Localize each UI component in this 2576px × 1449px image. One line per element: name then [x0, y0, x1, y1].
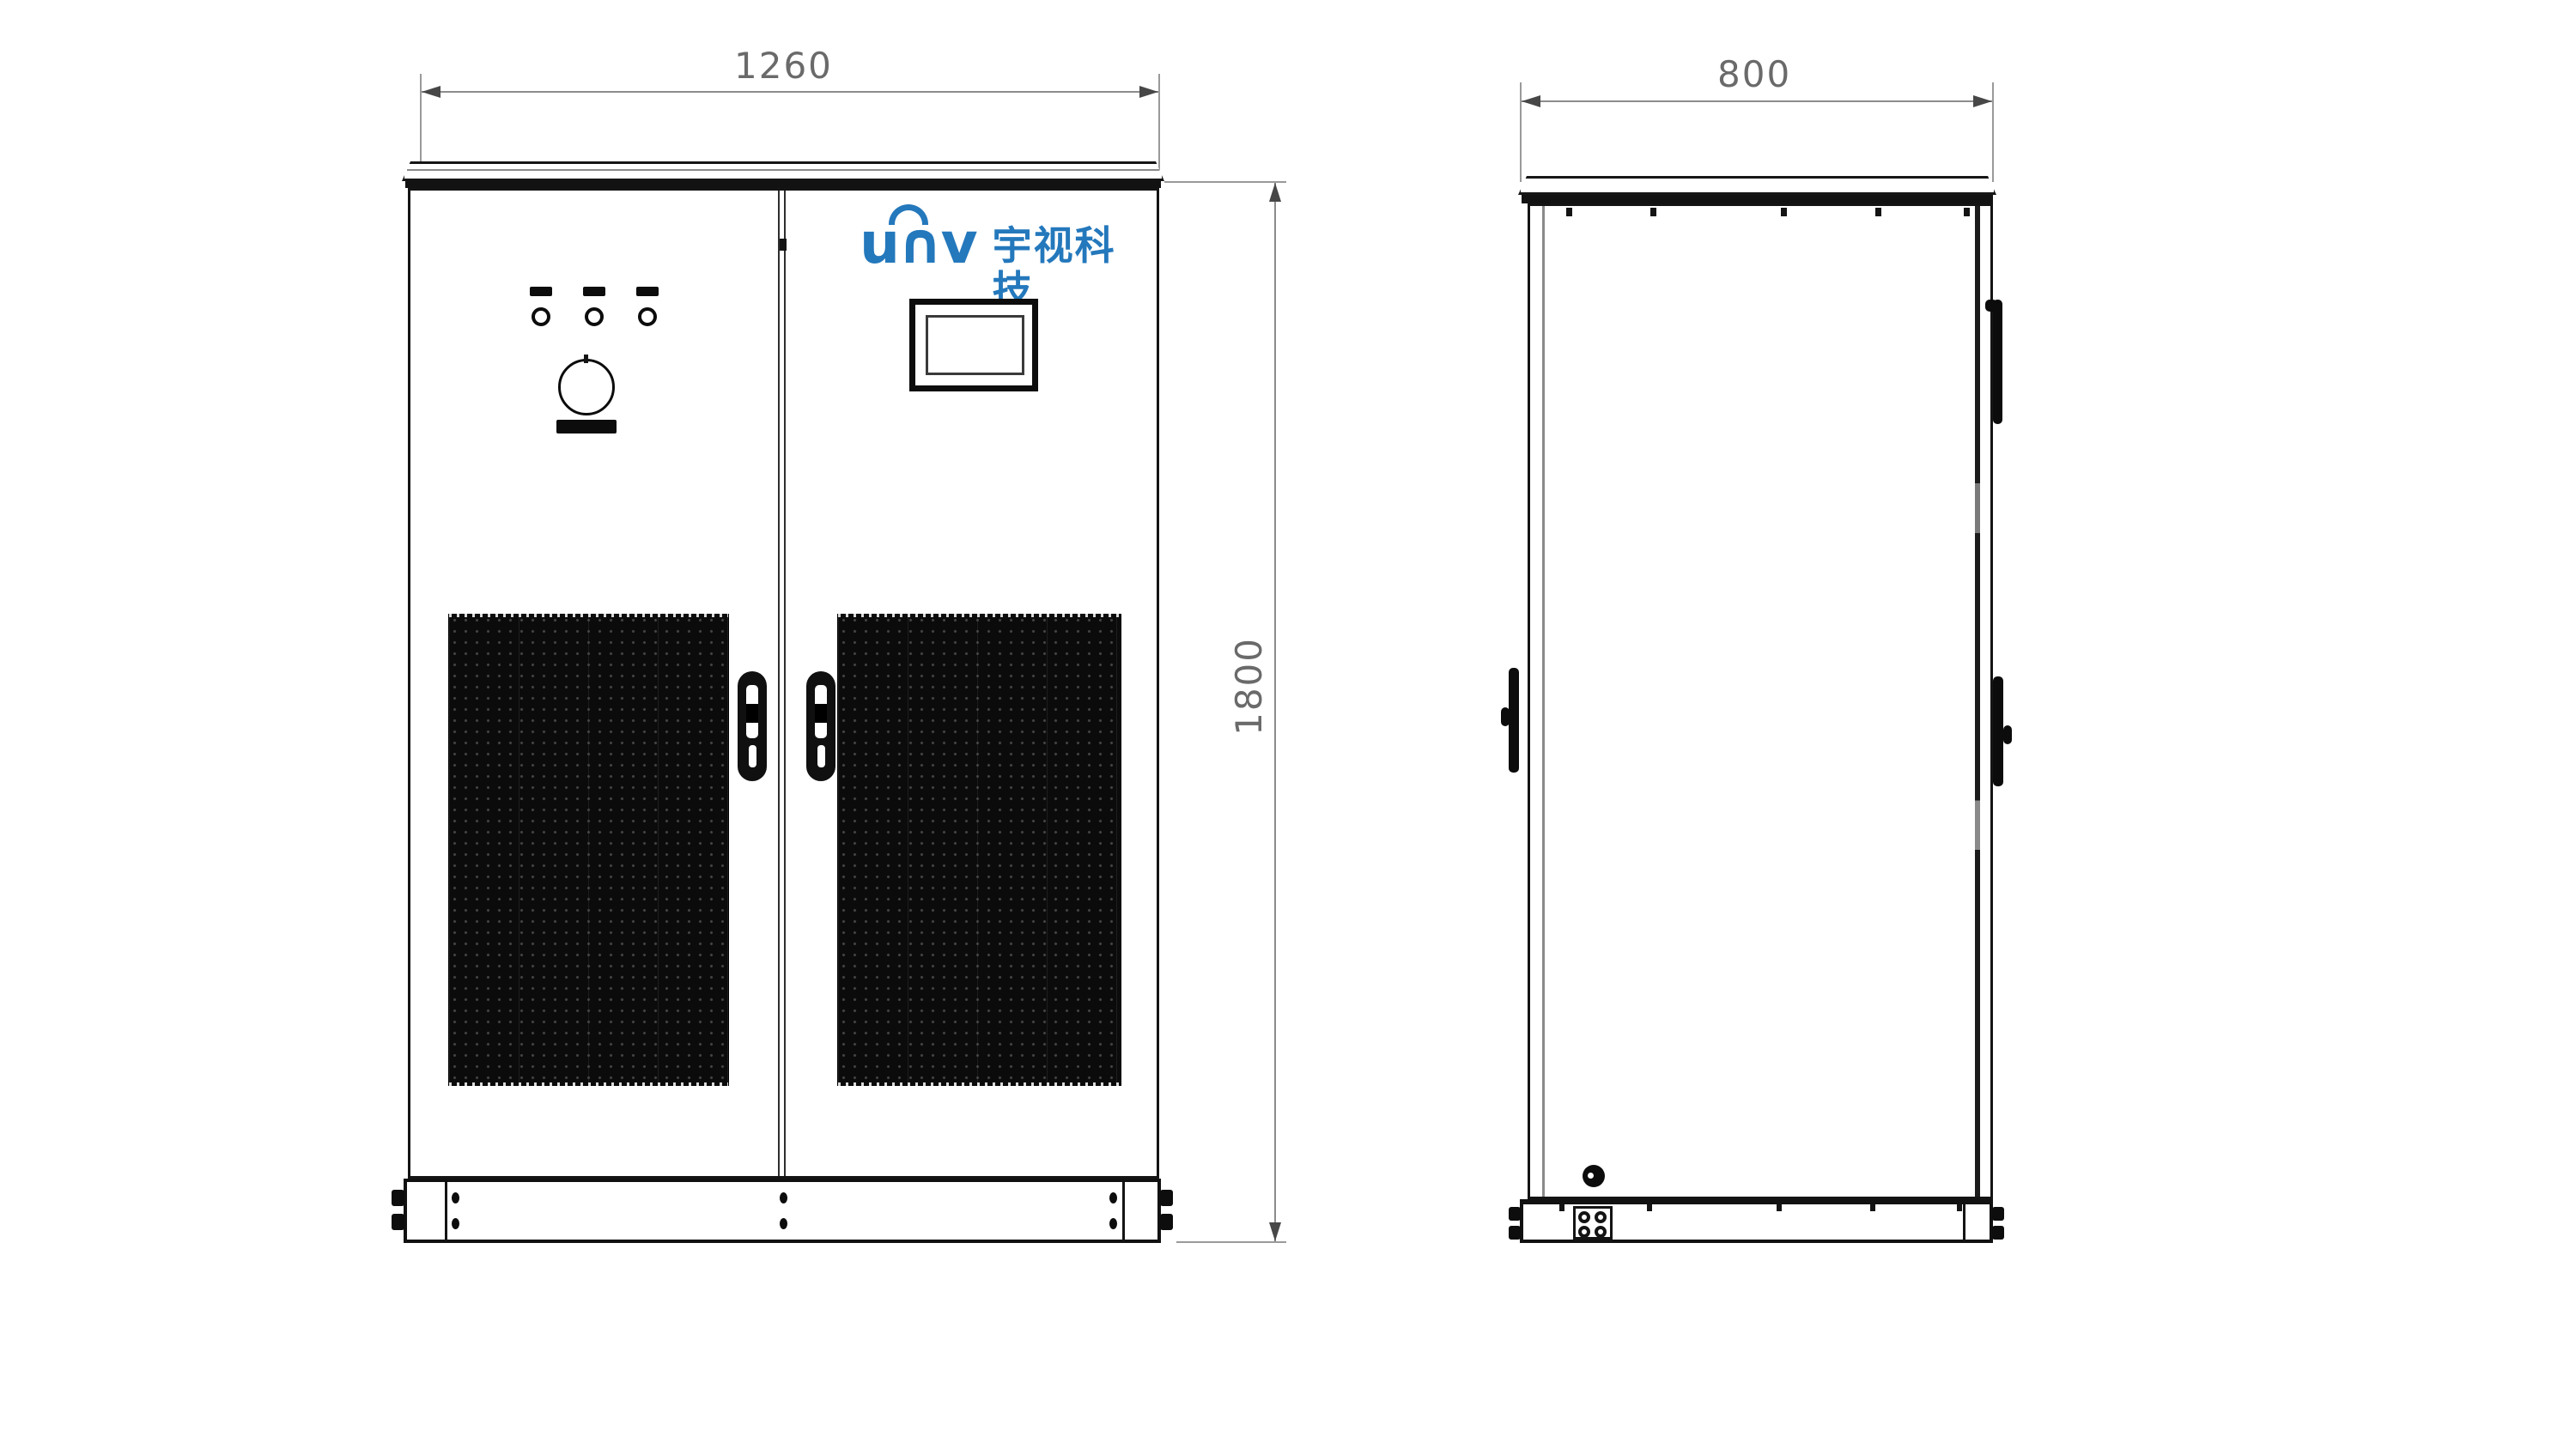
dimension-arrow-icon: [1139, 86, 1158, 98]
base-bolt-hole: [1109, 1192, 1117, 1203]
base-bolt-hole: [780, 1218, 787, 1229]
base-fastener-tick: [1647, 1204, 1652, 1211]
emergency-stop-notch: [584, 355, 588, 363]
base-fastener-tick: [1957, 1204, 1962, 1211]
front-cabinet-body: u∩v 宇视科技: [408, 188, 1159, 1179]
emergency-stop-button: [558, 359, 615, 415]
door-handle-right: [806, 671, 835, 781]
handle-latch: [815, 704, 827, 723]
door-seam-line: [778, 191, 780, 1176]
hmi-display-screen: [926, 315, 1024, 375]
front-base-plinth: [404, 1179, 1161, 1243]
emergency-stop-label-text: [556, 420, 617, 433]
front-width-dimension-label: 1260: [734, 45, 833, 87]
roof-fastener-tick: [1781, 208, 1787, 216]
side-depth-dimension-line: [1522, 100, 1992, 102]
base-side-bolt: [1160, 1214, 1173, 1230]
logo-arc-icon: [889, 204, 928, 225]
base-bolt-hole: [780, 1192, 787, 1203]
indicator-label-text: [636, 287, 659, 296]
roof-fastener-tick: [1875, 208, 1881, 216]
base-fastener-tick: [1777, 1204, 1782, 1211]
base-plate-bolt: [1578, 1226, 1590, 1238]
side-panel-rear-edge-line: [1975, 206, 1980, 1197]
dimension-arrow-icon: [1269, 1222, 1281, 1241]
door-seam-latch-mark: [780, 239, 787, 251]
base-side-bolt: [1509, 1226, 1521, 1240]
indicator-label-text: [530, 287, 552, 296]
dimension-arrow-icon: [1973, 95, 1992, 107]
front-view: 1260: [0, 0, 1331, 1449]
base-side-bolt: [1160, 1190, 1173, 1206]
side-view: 800: [1331, 0, 2576, 1449]
front-width-dimension-line: [422, 91, 1158, 93]
roof-fastener-tick: [1964, 208, 1970, 216]
base-plate-bolt: [1595, 1211, 1607, 1223]
base-bolt-hole: [452, 1218, 459, 1229]
side-top-band: [1522, 195, 1993, 203]
roof-fastener-tick: [1650, 208, 1656, 216]
handle-slot: [749, 745, 756, 767]
dimension-arrow-icon: [1522, 95, 1540, 107]
grounding-stud-center: [1588, 1173, 1594, 1179]
handle-latch: [746, 704, 758, 723]
side-base-plinth: [1520, 1199, 1993, 1243]
base-side-bolt: [392, 1190, 404, 1206]
base-plate-bolt: [1595, 1226, 1607, 1238]
indicator-light: [532, 307, 550, 326]
indicator-light: [585, 307, 604, 326]
base-side-bolt: [1992, 1226, 2004, 1240]
grounding-stud: [1583, 1165, 1605, 1187]
base-bolt-plate: [1573, 1206, 1613, 1240]
base-divider-line: [1122, 1182, 1125, 1240]
vent-grille-right: [837, 614, 1121, 1086]
base-divider-line: [445, 1182, 447, 1240]
side-panel-front-edge-line: [1542, 206, 1545, 1197]
front-height-dimension-label: 1800: [1228, 637, 1270, 736]
base-bolt-hole: [452, 1192, 459, 1203]
door-seam-line: [784, 191, 786, 1176]
base-fastener-tick: [1870, 1204, 1875, 1211]
rear-lock-rod: [1993, 300, 2002, 424]
dimension-arrow-icon: [422, 86, 440, 98]
indicator-light: [638, 307, 657, 326]
vent-grille-left: [448, 614, 729, 1086]
door-hinge-right: [1993, 676, 2003, 786]
front-top-band: [405, 180, 1161, 188]
dim-witness-line: [1164, 181, 1286, 183]
base-bolt-hole: [1109, 1218, 1117, 1229]
base-side-bolt: [392, 1214, 404, 1230]
base-side-bolt: [1992, 1207, 2004, 1221]
door-handle-left: [738, 671, 767, 781]
side-roof-lip: [1518, 176, 1996, 195]
dim-witness-line: [1176, 1241, 1286, 1243]
side-depth-dimension-label: 800: [1717, 53, 1791, 95]
front-roof-lip: [402, 161, 1164, 181]
dim-witness-line: [1158, 74, 1160, 184]
base-divider-line: [1963, 1204, 1965, 1240]
front-roof-lip-line: [407, 169, 1159, 171]
dim-witness-line: [1992, 82, 1994, 182]
dimension-arrow-icon: [1269, 183, 1281, 202]
door-hinge-left: [1509, 668, 1519, 773]
handle-slot: [817, 745, 825, 767]
base-side-bolt: [1509, 1207, 1521, 1221]
indicator-label-text: [583, 287, 605, 296]
hinge-pin-nub: [1501, 707, 1510, 726]
hinge-pin-nub: [2003, 725, 2012, 744]
roof-fastener-tick: [1566, 208, 1572, 216]
rear-lock-rod-hook: [1985, 300, 1997, 312]
hmi-display: [909, 299, 1038, 391]
base-fastener-tick: [1559, 1204, 1564, 1211]
side-panel-body: [1528, 203, 1993, 1199]
front-height-dimension-line: [1274, 183, 1276, 1241]
base-plate-bolt: [1578, 1211, 1590, 1223]
technical-drawing-canvas: 1260: [0, 0, 2576, 1449]
